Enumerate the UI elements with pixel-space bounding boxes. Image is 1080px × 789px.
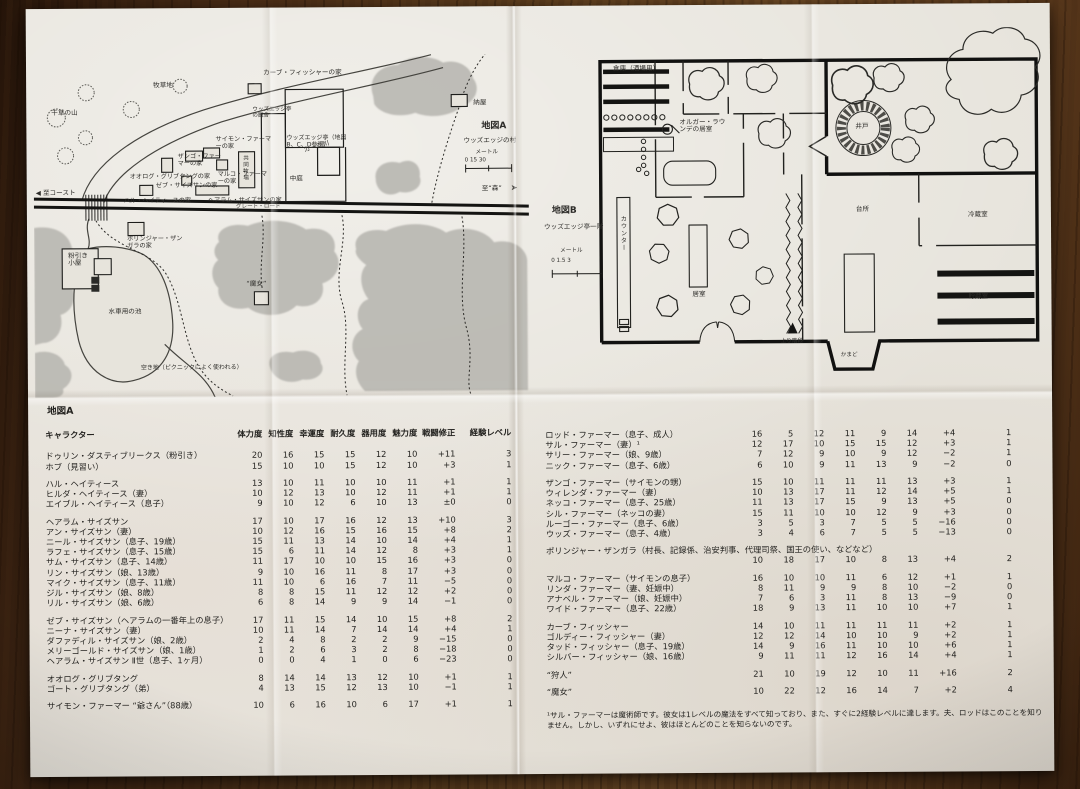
stat-value: 16 bbox=[325, 515, 356, 525]
stat-value: 8 bbox=[263, 597, 294, 607]
stat-value: 9 bbox=[794, 582, 825, 592]
stat-value: 12 bbox=[826, 668, 857, 678]
stat-value: 0 bbox=[457, 643, 513, 654]
stat-value: +1 bbox=[419, 699, 457, 709]
stat-value: 9 bbox=[733, 651, 764, 661]
stat-value: 11 bbox=[732, 497, 763, 507]
map-b-title: 地図B bbox=[552, 208, 577, 216]
table-header-row: キャラクター 体力度 知性度 幸運度 耐久度 器用度 魅力度 戦闘修正 経験レベ… bbox=[45, 427, 537, 440]
stat-value: 10 bbox=[293, 460, 324, 470]
stat-value: 16 bbox=[857, 650, 888, 660]
stat-value: 10 bbox=[326, 699, 357, 709]
stat-value: 18 bbox=[732, 603, 763, 613]
stat-value: 10 bbox=[325, 477, 356, 487]
stat-value: 2 bbox=[957, 667, 1013, 678]
map-a-title: 地図A bbox=[481, 123, 506, 131]
stat-value: 12 bbox=[356, 545, 387, 555]
map-a-scale-unit: メートル bbox=[476, 149, 498, 156]
stat-value: 16 bbox=[731, 429, 762, 439]
stat-value: 11 bbox=[763, 507, 794, 517]
stat-value: 8 bbox=[263, 587, 294, 597]
stat-value: +4 bbox=[917, 427, 955, 437]
stat-value: +10 bbox=[418, 514, 456, 524]
folded-paper-sheet: 牧草地 干草の山 カージ川 カーブ・フィッシャーの家 納屋 地図A ウッズエッジ… bbox=[26, 3, 1055, 777]
stat-value: 16 bbox=[356, 525, 387, 535]
stat-value: 11 bbox=[387, 477, 418, 487]
stat-value: 5 bbox=[763, 517, 794, 527]
stat-value: 15 bbox=[732, 507, 763, 517]
stat-value: 15 bbox=[293, 450, 324, 460]
stat-value: +4 bbox=[918, 554, 956, 564]
stat-value: 10 bbox=[263, 576, 294, 586]
stat-value: 19 bbox=[795, 668, 826, 678]
stat-value: 10 bbox=[263, 515, 294, 525]
keg-dots bbox=[636, 139, 649, 175]
stat-value: 8 bbox=[856, 582, 887, 592]
stat-value: +3 bbox=[418, 545, 456, 555]
stat-value: 2 bbox=[232, 635, 263, 645]
stat-value: 8 bbox=[388, 644, 419, 654]
stat-value: 11 bbox=[826, 640, 857, 650]
stat-value: 12 bbox=[731, 439, 762, 449]
stat-value: 12 bbox=[357, 672, 388, 682]
stat-value: 17 bbox=[232, 515, 263, 525]
map-label-ohlog-house: オオログ・グリブタングの家 bbox=[130, 173, 210, 181]
stat-value: 12 bbox=[294, 498, 325, 508]
character-row: ゴート・グリブタング（弟）41315121310−11 bbox=[47, 681, 539, 694]
storeroom-shelves bbox=[603, 69, 674, 176]
character-group: ポリンジャー・ザンガラ（村長、記録係、治安判事、代理司祭、国王の使い、などなど）… bbox=[546, 543, 1046, 566]
stat-value: 9 bbox=[387, 634, 418, 644]
stat-value: 6 bbox=[388, 654, 419, 664]
map-label-hal-house: ハル・ヘイティースの家 bbox=[124, 197, 191, 205]
stat-value: 10 bbox=[263, 498, 294, 508]
stat-value: 15 bbox=[294, 614, 325, 624]
stat-value: 15 bbox=[356, 555, 387, 565]
stat-value: 13 bbox=[232, 478, 263, 488]
stat-value: 0 bbox=[456, 585, 512, 596]
stat-value: −2 bbox=[917, 458, 955, 468]
stat-value: +3 bbox=[418, 565, 456, 575]
stat-value: 1 bbox=[326, 654, 357, 664]
stat-value: 11 bbox=[888, 667, 919, 677]
stat-value: 12 bbox=[763, 630, 794, 640]
map-label-polinjar-house: ポリンジャー・ザンガラの家 bbox=[127, 235, 183, 250]
character-group: “狩人”211019121011+162 bbox=[547, 667, 1047, 680]
map-label-village: ウッズエッジの村 bbox=[463, 137, 516, 145]
stat-value: 17 bbox=[794, 497, 825, 507]
stat-value: −9 bbox=[918, 592, 956, 602]
character-name: ニック・ファーマー（息子、6歳） bbox=[545, 459, 731, 470]
map-b-scale-ticks: 0 1.5 3 bbox=[551, 258, 571, 265]
stat-value: 10 bbox=[825, 630, 856, 640]
stat-value: 6 bbox=[856, 572, 887, 582]
stat-value: 10 bbox=[356, 477, 387, 487]
stat-value: 16 bbox=[262, 450, 293, 460]
stat-value: 15 bbox=[825, 496, 856, 506]
stat-value: 15 bbox=[324, 460, 355, 470]
stat-value: −18 bbox=[419, 644, 457, 654]
stat-value: 11 bbox=[387, 487, 418, 497]
character-row: “魔女”10221216147+24 bbox=[547, 684, 1047, 697]
map-label-barn: 納屋 bbox=[473, 99, 486, 106]
stat-value: 11 bbox=[263, 624, 294, 634]
stat-value: 7 bbox=[825, 527, 856, 537]
stat-value: 4 bbox=[295, 655, 326, 665]
stat-value: 0 bbox=[456, 575, 512, 586]
stat-value: 1 bbox=[956, 571, 1012, 582]
stat-value: 16 bbox=[295, 700, 326, 710]
stat-value: 6 bbox=[263, 546, 294, 556]
stat-value: 7 bbox=[731, 449, 762, 459]
stat-value: 0 bbox=[456, 633, 512, 644]
character-name: “魔女” bbox=[547, 686, 733, 697]
stat-value: 13 bbox=[794, 603, 825, 613]
stat-value: 13 bbox=[887, 476, 918, 486]
stat-value: −1 bbox=[419, 681, 457, 691]
character-row: ニック・ファーマー（息子、6歳）610911139−20 bbox=[545, 457, 1045, 470]
stat-value: 10 bbox=[325, 487, 356, 497]
stat-value: 14 bbox=[387, 596, 418, 606]
stat-value: 12 bbox=[355, 460, 386, 470]
stat-value: 5 bbox=[887, 516, 918, 526]
tree-icons bbox=[47, 79, 188, 164]
stat-value: 11 bbox=[825, 476, 856, 486]
stat-value: 7 bbox=[888, 685, 919, 695]
map-label-pasture: 牧草地 bbox=[153, 82, 173, 90]
character-group: サイモン・ファーマー “爺さん”（88歳）1061610617+11 bbox=[47, 698, 539, 711]
stat-value: 10 bbox=[263, 566, 294, 576]
character-table-left: 地図A キャラクター 体力度 知性度 幸運度 耐久度 器用度 魅力度 戦闘修正 … bbox=[45, 404, 539, 719]
stat-value: 1 bbox=[957, 649, 1013, 660]
stat-value: 12 bbox=[356, 487, 387, 497]
stat-value: 0 bbox=[457, 654, 513, 665]
stat-value: 3 bbox=[794, 517, 825, 527]
stat-value: 14 bbox=[732, 620, 763, 630]
stat-value: 4 bbox=[763, 527, 794, 537]
stat-value: 0 bbox=[456, 595, 512, 606]
stat-value: +2 bbox=[418, 586, 456, 596]
magic-user-footnote: ¹サル・ファーマーは魔術師です。彼女は1レベルの魔法をすべて知っており、また、す… bbox=[547, 708, 1047, 730]
map-label-haystack: 干草の山 bbox=[51, 110, 77, 118]
stat-value: 9 bbox=[856, 496, 887, 506]
character-name: ヘアラム・サイズサン Ⅱ世（息子、1ヶ月） bbox=[47, 655, 233, 666]
stat-value: +8 bbox=[418, 613, 456, 623]
stat-value: 8 bbox=[294, 634, 325, 644]
stat-value: 13 bbox=[887, 554, 918, 564]
stat-value: 16 bbox=[795, 640, 826, 650]
stat-value: 10 bbox=[794, 507, 825, 517]
stat-value: 11 bbox=[825, 572, 856, 582]
stat-value: 17 bbox=[232, 614, 263, 624]
column-header-experience-level: 経験レベル bbox=[455, 427, 511, 438]
stat-value: 6 bbox=[264, 700, 295, 710]
stat-value: 14 bbox=[295, 672, 326, 682]
stat-value: 10 bbox=[356, 535, 387, 545]
stat-value: 1 bbox=[956, 475, 1012, 486]
stat-value: 6 bbox=[295, 644, 326, 654]
stat-value: 0 bbox=[956, 591, 1012, 602]
stat-value: 9 bbox=[232, 498, 263, 508]
stat-value: 12 bbox=[856, 506, 887, 516]
character-row: エイブル・ヘイティース（息子）9101261013±00 bbox=[46, 496, 538, 509]
stat-value: 2 bbox=[357, 644, 388, 654]
stat-value: 11 bbox=[825, 592, 856, 602]
tavern-tables bbox=[646, 202, 777, 320]
stat-value: 15 bbox=[855, 438, 886, 448]
stat-value: 1 bbox=[955, 447, 1011, 458]
stat-value: 13 bbox=[357, 682, 388, 692]
stat-value: 14 bbox=[325, 614, 356, 624]
column-header-combat-adjust: 戦闘修正 bbox=[417, 428, 455, 438]
stat-value: 10 bbox=[732, 555, 763, 565]
stat-value: 11 bbox=[856, 620, 887, 630]
stat-value: 12 bbox=[732, 631, 763, 641]
stat-value: 10 bbox=[825, 555, 856, 565]
stat-value: 5 bbox=[762, 428, 793, 438]
entrance-door-arcs bbox=[700, 322, 735, 342]
stat-value: 10 bbox=[794, 572, 825, 582]
stat-value: 10 bbox=[356, 497, 387, 507]
map-label-cold-room: 冷蔵室 bbox=[968, 211, 988, 219]
map-label-mill: 粉引き小屋 bbox=[68, 253, 94, 268]
stat-value: 4 bbox=[957, 684, 1013, 695]
stat-value: 11 bbox=[325, 586, 356, 596]
stat-value: 11 bbox=[794, 476, 825, 486]
stat-value: 5 bbox=[856, 527, 887, 537]
stat-value: 11 bbox=[764, 651, 795, 661]
stat-value: +4 bbox=[418, 535, 456, 545]
character-row: ヘアラム・サイズサン Ⅱ世（息子、1ヶ月）004106−230 bbox=[47, 653, 539, 666]
stat-value: +5 bbox=[918, 486, 956, 496]
stat-value: 15 bbox=[232, 546, 263, 556]
stat-value: 14 bbox=[387, 535, 418, 545]
stat-value: 13 bbox=[294, 487, 325, 497]
map-label-counter: カウンター bbox=[619, 215, 627, 267]
stat-value: 1 bbox=[956, 485, 1012, 496]
stat-value: 1 bbox=[456, 476, 512, 487]
map-b-scale-bar bbox=[552, 270, 602, 278]
character-row: サイモン・ファーマー “爺さん”（88歳）1061610617+11 bbox=[47, 698, 539, 711]
stat-value: +4 bbox=[919, 650, 957, 660]
stat-value: 15 bbox=[231, 460, 262, 470]
stat-value: 12 bbox=[793, 428, 824, 438]
stat-value: 17 bbox=[263, 556, 294, 566]
map-label-mill-pond: 水車用の池 bbox=[108, 308, 141, 316]
stat-value: +3 bbox=[418, 555, 456, 565]
stat-value: 14 bbox=[887, 486, 918, 496]
stat-value: 11 bbox=[824, 428, 855, 438]
character-name: ウッズ・ファーマー（息子、4歳） bbox=[546, 528, 732, 539]
stat-value: 0 bbox=[456, 555, 512, 566]
stat-value: 6 bbox=[794, 527, 825, 537]
stat-value: 1 bbox=[957, 639, 1013, 650]
character-name: エイブル・ヘイティース（息子） bbox=[46, 498, 232, 509]
stat-value: 11 bbox=[825, 602, 856, 612]
map-a-panel: 牧草地 干草の山 カージ川 カーブ・フィッシャーの家 納屋 地図A ウッズエッジ… bbox=[33, 50, 530, 398]
stat-value: 0 bbox=[233, 655, 264, 665]
stat-value: 0 bbox=[956, 506, 1012, 517]
stat-value: +2 bbox=[918, 619, 956, 629]
stat-value: 9 bbox=[325, 596, 356, 606]
stat-value: 0 bbox=[956, 526, 1012, 537]
stat-value: 0 bbox=[456, 497, 512, 508]
stat-value: 9 bbox=[232, 566, 263, 576]
stat-value: 8 bbox=[232, 587, 263, 597]
stat-value: 15 bbox=[387, 613, 418, 623]
stat-value: 8 bbox=[856, 592, 887, 602]
stat-value: 8 bbox=[732, 583, 763, 593]
stat-value: 8 bbox=[387, 545, 418, 555]
character-row: 10181710813+42 bbox=[546, 553, 1046, 566]
stat-value: 9 bbox=[887, 630, 918, 640]
stat-value: 4 bbox=[233, 683, 264, 693]
stat-value: 6 bbox=[763, 593, 794, 603]
stat-value: 14 bbox=[294, 597, 325, 607]
stat-value: 10 bbox=[386, 449, 417, 459]
column-header-charisma: 魅力度 bbox=[386, 428, 417, 438]
stat-value: 2 bbox=[456, 524, 512, 535]
stat-value: 10 bbox=[887, 602, 918, 612]
stat-value: 12 bbox=[263, 488, 294, 498]
staircase-zigzag bbox=[786, 193, 803, 333]
stat-value: 2 bbox=[264, 645, 295, 655]
stat-value: 10 bbox=[856, 630, 887, 640]
stat-value: 14 bbox=[325, 545, 356, 555]
map-b-subtitle: ウッズエッジ亭一階 bbox=[544, 224, 603, 232]
stat-value: 14 bbox=[733, 641, 764, 651]
stat-value: 10 bbox=[733, 686, 764, 696]
character-rows-left: ドゥリン・ダスティブリークス（粉引き）201615151210+113ホブ（見習… bbox=[45, 448, 539, 711]
stat-value: 2 bbox=[456, 613, 512, 624]
character-row: リル・サイズサン（娘、6歳）68149914−10 bbox=[46, 595, 538, 608]
stat-value: 11 bbox=[294, 546, 325, 556]
stat-value: 10 bbox=[294, 556, 325, 566]
stat-value: 6 bbox=[232, 597, 263, 607]
stat-value: 10 bbox=[386, 459, 417, 469]
stat-value: +3 bbox=[918, 475, 956, 485]
stat-value: 4 bbox=[263, 634, 294, 644]
stat-value: 11 bbox=[325, 566, 356, 576]
map-label-road-name: グレート・ロード bbox=[236, 204, 281, 211]
stat-value: −5 bbox=[418, 575, 456, 585]
stat-value: 13 bbox=[763, 497, 794, 507]
stat-value: 17 bbox=[762, 439, 793, 449]
stat-value: 13 bbox=[294, 535, 325, 545]
character-group: マルコ・ファーマー（サイモンの息子）16101011612+11リンダ・ファーマ… bbox=[546, 571, 1046, 615]
stat-value: 8 bbox=[356, 566, 387, 576]
stat-value: 10 bbox=[356, 614, 387, 624]
stat-value: 5 bbox=[856, 517, 887, 527]
stat-value: 1 bbox=[456, 534, 512, 545]
stat-value: 14 bbox=[356, 624, 387, 634]
stat-value: 9 bbox=[887, 506, 918, 516]
stat-value: 6 bbox=[731, 459, 762, 469]
stat-value: +3 bbox=[417, 459, 455, 469]
stat-value: ±0 bbox=[418, 497, 456, 507]
stat-value: 7 bbox=[732, 593, 763, 603]
stat-value: 16 bbox=[294, 525, 325, 535]
stat-value: 7 bbox=[356, 576, 387, 586]
stat-value: 20 bbox=[231, 450, 262, 460]
stat-value: 2 bbox=[325, 634, 356, 644]
stat-value: 12 bbox=[795, 685, 826, 695]
stat-value: 10 bbox=[233, 700, 264, 710]
stat-value: +2 bbox=[919, 685, 957, 695]
stat-value: 11 bbox=[825, 486, 856, 496]
stat-value: 11 bbox=[825, 620, 856, 630]
stat-value: 10 bbox=[325, 556, 356, 566]
stat-value: 0 bbox=[264, 655, 295, 665]
map-label-fisher-house: カーブ・フィッシャーの家 bbox=[263, 69, 342, 77]
stat-value: 12 bbox=[355, 449, 386, 459]
stat-value: +16 bbox=[919, 667, 957, 677]
character-group: カーブ・フィッシャー141011111111+21ゴルディー・フィッシャー（妻）… bbox=[546, 619, 1046, 663]
map-b-panel: 地図B ウッズエッジ亭一階 メートル 0 1.5 3 倉庫（酒場用） オルガー・… bbox=[543, 27, 1045, 390]
stat-value: 14 bbox=[886, 428, 917, 438]
stat-value: 7 bbox=[325, 624, 356, 634]
character-name: “狩人” bbox=[547, 669, 733, 680]
stat-value: 10 bbox=[232, 488, 263, 498]
stat-value: 10 bbox=[762, 459, 793, 469]
stat-value: 6 bbox=[294, 576, 325, 586]
stat-value: 9 bbox=[764, 641, 795, 651]
stat-value: 21 bbox=[733, 668, 764, 678]
map-label-witch-hut: “魔女” bbox=[246, 281, 266, 289]
stat-value: 1 bbox=[457, 671, 513, 682]
stat-value: 0 bbox=[456, 565, 512, 576]
stat-value: 9 bbox=[763, 603, 794, 613]
character-group: ザンゴ・ファーマー（サイモンの甥）151011111113+31ウィレンダ・ファ… bbox=[546, 475, 1046, 539]
stat-value: 11 bbox=[794, 620, 825, 630]
stat-value: 14 bbox=[888, 650, 919, 660]
stat-value: 17 bbox=[794, 486, 825, 496]
stat-value: 14 bbox=[264, 672, 295, 682]
stat-value: 0 bbox=[357, 654, 388, 664]
stat-value: 9 bbox=[886, 458, 917, 468]
stat-value: 12 bbox=[762, 449, 793, 459]
stat-value: 17 bbox=[387, 565, 418, 575]
stat-value: 15 bbox=[324, 450, 355, 460]
stat-value: +6 bbox=[919, 640, 957, 650]
stat-value: 5 bbox=[887, 527, 918, 537]
stat-value: 14 bbox=[794, 630, 825, 640]
stat-value: 10 bbox=[232, 624, 263, 634]
map-label-inn-stable: ウッズエッジ亭の厩舎 bbox=[252, 107, 292, 120]
stat-value: 9 bbox=[825, 582, 856, 592]
stat-value: 9 bbox=[855, 448, 886, 458]
map-label-common-pasture: 共同牧場 bbox=[242, 155, 249, 187]
map-label-hairam-house: ヘアラム・サイズサンの家 bbox=[208, 197, 282, 205]
stat-value: +1 bbox=[418, 476, 456, 486]
stat-value: 9 bbox=[356, 596, 387, 606]
stat-value: 6 bbox=[357, 699, 388, 709]
stat-value: 14 bbox=[325, 535, 356, 545]
stat-value: 3 bbox=[732, 517, 763, 527]
stat-value: 12 bbox=[886, 448, 917, 458]
stat-value: 18 bbox=[763, 555, 794, 565]
stat-value: 17 bbox=[794, 555, 825, 565]
column-header-name: キャラクター bbox=[45, 429, 231, 440]
stat-value: 11 bbox=[232, 577, 263, 587]
character-row: シルバー・フィッシャー（娘、16歳）91111121614+41 bbox=[547, 649, 1047, 662]
stat-value: 10 bbox=[764, 668, 795, 678]
stat-value: 17 bbox=[388, 699, 419, 709]
stat-value: 11 bbox=[232, 556, 263, 566]
stat-value: 10 bbox=[262, 460, 293, 470]
stat-value: 14 bbox=[857, 685, 888, 695]
stat-value: 10 bbox=[232, 526, 263, 536]
